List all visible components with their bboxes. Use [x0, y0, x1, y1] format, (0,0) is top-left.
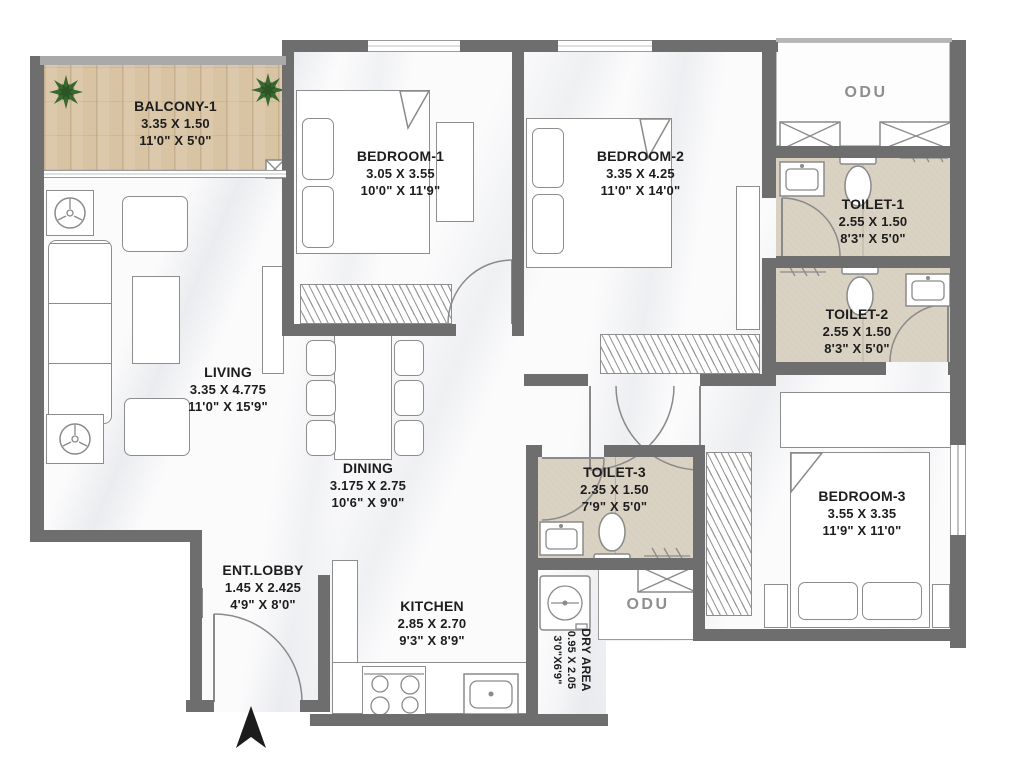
window-bedroom-1 — [368, 40, 460, 52]
room-name: BEDROOM-1 — [308, 148, 493, 166]
room-name: TOILET-2 — [782, 306, 932, 324]
wall — [762, 40, 776, 198]
room-label-toilet-1: TOILET-1 2.55 X 1.50 8'3" X 5'0" — [798, 196, 948, 247]
wall — [282, 40, 778, 52]
room-name: BEDROOM-2 — [548, 148, 733, 166]
wall — [950, 40, 966, 445]
wall — [693, 445, 705, 641]
room-label-toilet-3: TOILET-3 2.35 X 1.50 7'9" X 5'0" — [542, 464, 687, 515]
wall — [776, 146, 950, 158]
room-dim-ft: 4'9" X 8'0" — [200, 597, 326, 614]
room-dim-m: 2.35 X 1.50 — [542, 482, 687, 499]
wall — [30, 530, 202, 542]
window-bedroom-3 — [950, 445, 966, 535]
room-dim-m: 3.175 X 2.75 — [278, 478, 458, 495]
plant-icon — [49, 75, 83, 109]
room-dim-m: 3.55 X 3.35 — [772, 506, 952, 523]
toilet-wc-icon — [594, 513, 630, 564]
room-dim-m: 2.85 X 2.70 — [344, 616, 520, 633]
odu-label-middle: ODU — [612, 596, 684, 614]
room-label-dry-area: DRY AREA 0.95 X 2.05 3'0"X6'9" — [537, 602, 593, 718]
wall — [762, 258, 776, 386]
wall — [186, 700, 214, 712]
odu-open-edge — [776, 38, 952, 42]
blanket-fold — [400, 91, 429, 128]
wall — [526, 445, 542, 457]
balcony-sliding-door — [44, 170, 286, 178]
washbasin-icon — [780, 162, 824, 196]
room-label-bedroom-1: BEDROOM-1 3.05 X 3.55 10'0" X 11'9" — [308, 148, 493, 199]
room-dim-ft: 11'0" X 15'9" — [138, 399, 318, 416]
wall — [282, 52, 294, 336]
room-dim-ft: 8'3" X 5'0" — [798, 231, 948, 248]
washbasin-icon — [906, 274, 950, 306]
room-label-living: LIVING 3.35 X 4.775 11'0" X 15'9" — [138, 364, 318, 415]
wall — [948, 362, 966, 375]
room-label-bedroom-3: BEDROOM-3 3.55 X 3.35 11'9" X 11'0" — [772, 488, 952, 539]
room-label-toilet-2: TOILET-2 2.55 X 1.50 8'3" X 5'0" — [782, 306, 932, 357]
room-dim-m: 3.35 X 4.25 — [548, 166, 733, 183]
wall — [512, 52, 524, 336]
room-name: BALCONY-1 — [88, 98, 263, 116]
room-dim-ft: 9'3" X 8'9" — [344, 633, 520, 650]
room-name: DRY AREA — [578, 602, 593, 718]
wall — [700, 374, 776, 386]
kitchen-sink-icon — [464, 674, 518, 714]
room-dim-m: 3.35 X 1.50 — [88, 116, 263, 133]
room-dim-m: 0.95 X 2.05 — [564, 602, 578, 718]
room-dim-m: 1.45 X 2.425 — [200, 580, 326, 597]
room-dim-ft: 11'0" X 5'0" — [88, 133, 263, 150]
room-dim-m: 3.35 X 4.775 — [138, 382, 318, 399]
wall — [604, 445, 705, 457]
window-bedroom-2 — [558, 40, 652, 52]
wall — [776, 256, 950, 268]
room-label-ent-lobby: ENT.LOBBY 1.45 X 2.425 4'9" X 8'0" — [200, 562, 326, 613]
ceiling-fan-icon — [55, 198, 85, 228]
door-arc-bedroom-1 — [448, 260, 512, 324]
room-name: DINING — [278, 460, 458, 478]
room-name: LIVING — [138, 364, 318, 382]
door-arc-entrance — [214, 614, 302, 702]
north-arrow-icon — [236, 706, 266, 748]
room-name: TOILET-3 — [542, 464, 687, 482]
room-dim-ft: 8'3" X 5'0" — [782, 341, 932, 358]
stove-burners — [364, 674, 424, 715]
room-name: BEDROOM-3 — [772, 488, 952, 506]
balcony-railing — [40, 56, 286, 65]
room-name: KITCHEN — [344, 598, 520, 616]
floor-plan-canvas: BALCONY-1 3.35 X 1.50 11'0" X 5'0" BEDRO… — [0, 0, 1024, 768]
room-dim-m: 3.05 X 3.55 — [308, 166, 493, 183]
wall — [524, 374, 588, 386]
room-dim-ft: 11'9" X 11'0" — [772, 523, 952, 540]
room-dim-ft: 11'0" X 14'0" — [548, 183, 733, 200]
room-label-kitchen: KITCHEN 2.85 X 2.70 9'3" X 8'9" — [344, 598, 520, 649]
wall — [190, 530, 202, 712]
room-dim-ft: 3'0"X6'9" — [549, 602, 563, 718]
wall — [700, 629, 966, 641]
room-label-dining: DINING 3.175 X 2.75 10'6" X 9'0" — [278, 460, 458, 511]
room-name: ENT.LOBBY — [200, 562, 326, 580]
room-dim-m: 2.55 X 1.50 — [798, 214, 948, 231]
wall — [294, 324, 456, 336]
room-label-balcony-1: BALCONY-1 3.35 X 1.50 11'0" X 5'0" — [88, 98, 263, 149]
odu-label-top: ODU — [828, 84, 904, 102]
room-dim-ft: 7'9" X 5'0" — [542, 499, 687, 516]
room-name: TOILET-1 — [798, 196, 948, 214]
room-dim-ft: 10'6" X 9'0" — [278, 495, 458, 512]
room-label-bedroom-2: BEDROOM-2 3.35 X 4.25 11'0" X 14'0" — [548, 148, 733, 199]
wall — [30, 56, 44, 542]
ceiling-fan-icon — [60, 424, 90, 454]
door-arc-bedroom-3 — [616, 386, 700, 470]
blanket-fold — [791, 453, 822, 492]
room-dim-m: 2.55 X 1.50 — [782, 324, 932, 341]
wall — [538, 558, 705, 570]
room-dim-ft: 10'0" X 11'9" — [308, 183, 493, 200]
wall — [776, 362, 886, 375]
washbasin-icon — [540, 522, 583, 555]
